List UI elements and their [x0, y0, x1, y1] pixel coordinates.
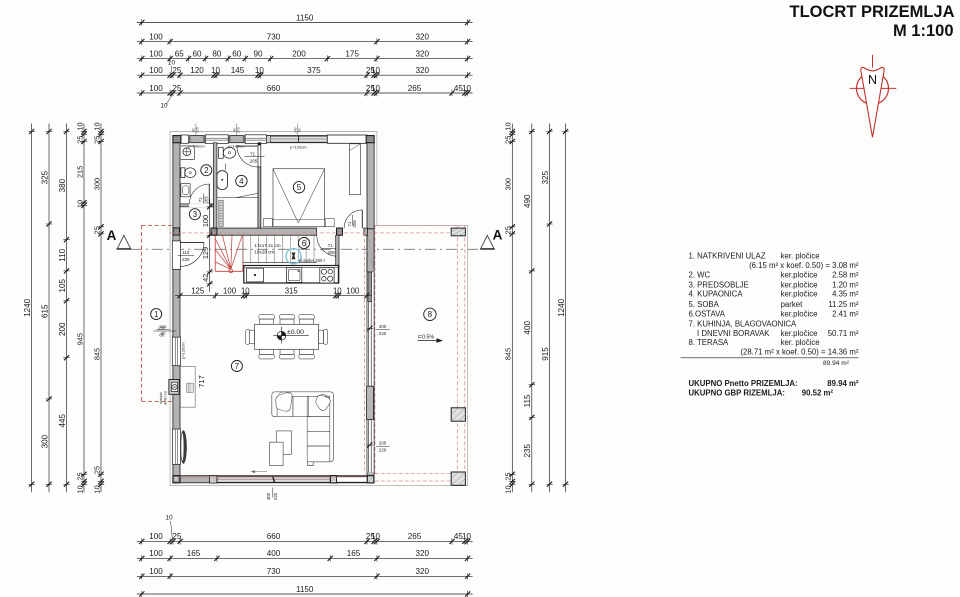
svg-text:200: 200	[58, 322, 67, 336]
svg-text:40/40 cm: 40/40 cm	[163, 391, 167, 405]
svg-text:ker.pločice: ker.pločice	[781, 271, 818, 280]
svg-text:300: 300	[40, 434, 49, 448]
svg-text:ker.pločice: ker.pločice	[781, 290, 818, 299]
svg-text:A: A	[493, 228, 503, 243]
svg-text:10: 10	[504, 122, 513, 130]
svg-text:265: 265	[408, 532, 422, 541]
svg-text:25: 25	[92, 466, 101, 474]
svg-text:89.94 m²: 89.94 m²	[827, 379, 859, 388]
svg-text:7. KUHINJA, BLAGOVAONICA: 7. KUHINJA, BLAGOVAONICA	[689, 320, 798, 329]
svg-text:16x28 cm: 16x28 cm	[254, 250, 274, 255]
svg-text:10: 10	[75, 122, 84, 130]
svg-text:945: 945	[75, 333, 84, 345]
svg-text:10: 10	[211, 66, 221, 75]
svg-text:320: 320	[415, 567, 429, 576]
svg-text:el.boiler 200 l: el.boiler 200 l	[299, 258, 325, 263]
svg-text:ker. pločice: ker. pločice	[781, 338, 820, 347]
svg-text:145: 145	[231, 66, 245, 75]
svg-text:2.58 m²: 2.58 m²	[832, 271, 859, 280]
svg-text:60: 60	[232, 49, 242, 58]
svg-text:TLOCRT PRIZEMLJA: TLOCRT PRIZEMLJA	[790, 3, 955, 21]
svg-text:165: 165	[187, 549, 201, 558]
svg-text:100: 100	[149, 49, 163, 58]
svg-text:205: 205	[196, 127, 200, 133]
svg-text:165: 165	[347, 549, 361, 558]
svg-text:A: A	[107, 228, 117, 243]
svg-text:2: 2	[204, 166, 209, 175]
svg-text:17x17.41 cm: 17x17.41 cm	[254, 243, 280, 248]
svg-text:6: 6	[302, 239, 307, 248]
svg-text:400: 400	[523, 321, 532, 335]
svg-text:ker. pločice: ker. pločice	[781, 252, 820, 261]
svg-text:i=0.5%: i=0.5%	[418, 335, 435, 341]
svg-text:265: 265	[408, 84, 422, 93]
svg-text:10: 10	[462, 84, 472, 93]
svg-text:10: 10	[462, 532, 472, 541]
svg-text:10: 10	[504, 485, 513, 493]
svg-text:ker.pločice: ker.pločice	[781, 329, 818, 338]
svg-text:3: 3	[193, 210, 198, 219]
svg-text:380: 380	[58, 178, 67, 192]
svg-text:615: 615	[40, 304, 49, 318]
svg-text:10: 10	[168, 60, 176, 67]
svg-text:10: 10	[75, 200, 84, 208]
svg-text:UKUPNO GBP RIZEMLJA:: UKUPNO GBP RIZEMLJA:	[689, 388, 785, 397]
svg-text:205: 205	[237, 127, 241, 133]
svg-text:100: 100	[149, 567, 163, 576]
svg-text:10: 10	[75, 485, 84, 493]
svg-text:25: 25	[172, 84, 182, 93]
svg-text:320: 320	[415, 66, 429, 75]
svg-text:100: 100	[149, 549, 163, 558]
svg-text:42: 42	[201, 274, 210, 282]
svg-text:730: 730	[267, 567, 281, 576]
svg-text:80: 80	[298, 128, 302, 132]
svg-text:71: 71	[328, 243, 333, 248]
svg-text:25: 25	[172, 66, 182, 75]
svg-text:375: 375	[307, 66, 321, 75]
svg-text:320: 320	[415, 49, 429, 58]
svg-text:235: 235	[523, 443, 532, 457]
svg-text:1240: 1240	[23, 298, 32, 317]
svg-text:UKUPNO Pnetto PRIZEMLJA:: UKUPNO Pnetto PRIZEMLJA:	[689, 379, 798, 388]
svg-text:1: 1	[154, 310, 159, 319]
svg-text:10: 10	[333, 286, 342, 295]
svg-text:10: 10	[241, 286, 250, 295]
svg-text:25: 25	[92, 136, 101, 144]
svg-text:100: 100	[149, 32, 163, 41]
svg-text:50.71 m²: 50.71 m²	[828, 329, 859, 338]
svg-text:300: 300	[504, 178, 513, 190]
svg-text:2.41 m²: 2.41 m²	[832, 310, 859, 319]
svg-text:I DNEVNI BORAVAK: I DNEVNI BORAVAK	[697, 329, 770, 338]
svg-text:90.52 m²: 90.52 m²	[802, 388, 834, 397]
svg-text:100: 100	[346, 286, 360, 295]
svg-text:10: 10	[165, 515, 173, 522]
svg-text:25: 25	[504, 136, 513, 144]
svg-text:71: 71	[250, 151, 255, 156]
svg-text:80: 80	[161, 331, 166, 336]
svg-text:ker.pločice: ker.pločice	[781, 310, 818, 319]
svg-text:p=140cm: p=140cm	[188, 144, 205, 149]
svg-text:200: 200	[292, 49, 306, 58]
svg-text:10: 10	[92, 485, 101, 493]
svg-text:3. PREDSOBLJE: 3. PREDSOBLJE	[689, 280, 749, 289]
svg-text:660: 660	[267, 532, 281, 541]
svg-text:10: 10	[371, 84, 381, 93]
svg-text:400: 400	[266, 492, 271, 500]
svg-text:220: 220	[273, 492, 278, 500]
svg-text:±0.00: ±0.00	[287, 329, 304, 336]
svg-text:205: 205	[352, 220, 357, 228]
svg-text:445: 445	[58, 414, 67, 428]
svg-text:100: 100	[149, 532, 163, 541]
svg-text:845: 845	[504, 348, 513, 360]
svg-text:215: 215	[75, 166, 84, 178]
svg-text:p=145cm: p=145cm	[228, 144, 245, 149]
svg-text:320: 320	[415, 32, 429, 41]
svg-text:(28.71 m² x koef. 0.50) = 14.3: (28.71 m² x koef. 0.50) = 14.36 m²	[740, 347, 858, 356]
svg-text:200: 200	[160, 324, 167, 329]
svg-text:100: 100	[201, 215, 210, 227]
svg-text:8: 8	[428, 310, 433, 319]
svg-text:110: 110	[182, 250, 190, 255]
svg-text:25: 25	[172, 532, 182, 541]
svg-text:220: 220	[379, 331, 387, 336]
svg-text:90: 90	[253, 49, 263, 58]
svg-text:7: 7	[235, 362, 240, 371]
svg-text:105: 105	[58, 278, 67, 292]
svg-text:325: 325	[541, 170, 550, 184]
svg-text:845: 845	[92, 348, 101, 360]
svg-text:89.94 m²: 89.94 m²	[823, 360, 850, 367]
svg-text:315: 315	[285, 286, 299, 295]
svg-text:205: 205	[203, 196, 208, 204]
svg-text:115: 115	[523, 394, 532, 407]
svg-text:1.20 m²: 1.20 m²	[832, 280, 859, 289]
svg-text:1240: 1240	[557, 298, 566, 317]
svg-text:915: 915	[541, 347, 550, 361]
svg-text:6.OSTAVA: 6.OSTAVA	[689, 310, 726, 319]
svg-text:1150: 1150	[296, 585, 314, 594]
svg-text:p=120cm: p=120cm	[290, 144, 307, 149]
svg-text:175: 175	[345, 49, 359, 58]
svg-text:220: 220	[182, 257, 190, 262]
svg-text:N: N	[868, 73, 877, 87]
svg-text:25: 25	[504, 226, 513, 234]
svg-text:100: 100	[149, 84, 163, 93]
svg-text:125: 125	[191, 286, 205, 295]
svg-text:25: 25	[504, 472, 513, 480]
svg-text:200: 200	[379, 441, 387, 446]
svg-text:2. WC: 2. WC	[689, 271, 711, 280]
svg-text:4: 4	[239, 177, 244, 186]
svg-text:129: 129	[201, 247, 210, 259]
svg-text:1150: 1150	[296, 13, 314, 22]
svg-text:110: 110	[58, 248, 67, 261]
svg-text:400: 400	[379, 324, 387, 329]
svg-text:ker.pločice: ker.pločice	[781, 280, 818, 289]
svg-text:400: 400	[267, 549, 281, 558]
svg-text:60: 60	[192, 49, 202, 58]
svg-text:5: 5	[297, 183, 302, 192]
svg-text:325: 325	[40, 170, 49, 184]
svg-text:660: 660	[267, 84, 281, 93]
svg-text:300: 300	[92, 178, 101, 190]
svg-text:120: 120	[190, 66, 204, 75]
svg-text:parket: parket	[781, 300, 804, 309]
svg-text:100: 100	[149, 66, 163, 75]
svg-text:5. SOBA: 5. SOBA	[689, 300, 720, 309]
svg-text:10: 10	[92, 122, 101, 130]
svg-text:8. TERASA: 8. TERASA	[689, 338, 730, 347]
svg-text:10: 10	[255, 66, 265, 75]
svg-text:10: 10	[371, 532, 381, 541]
svg-text:730: 730	[267, 32, 281, 41]
svg-text:p=120cm: p=120cm	[180, 342, 185, 359]
svg-text:100: 100	[223, 286, 237, 295]
svg-text:11.25 m²: 11.25 m²	[828, 300, 859, 309]
svg-text:25: 25	[75, 472, 84, 480]
svg-text:M 1:100: M 1:100	[893, 22, 954, 40]
svg-text:717: 717	[197, 375, 206, 388]
svg-text:205: 205	[328, 250, 336, 255]
svg-text:65: 65	[175, 49, 185, 58]
svg-text:25: 25	[92, 226, 101, 234]
svg-text:4. KUPAONICA: 4. KUPAONICA	[689, 290, 744, 299]
svg-text:320: 320	[415, 549, 429, 558]
svg-text:(6.15 m² x koef. 0.50) = 3.08: (6.15 m² x koef. 0.50) = 3.08 m²	[749, 261, 859, 270]
svg-text:490: 490	[523, 194, 532, 208]
svg-text:205: 205	[250, 158, 258, 163]
svg-text:1. NATKRIVENI ULAZ: 1. NATKRIVENI ULAZ	[689, 252, 766, 261]
svg-text:80: 80	[212, 49, 222, 58]
svg-text:4.35 m²: 4.35 m²	[832, 290, 859, 299]
svg-text:25: 25	[75, 136, 84, 144]
svg-text:220: 220	[379, 447, 387, 452]
svg-text:10: 10	[371, 66, 381, 75]
